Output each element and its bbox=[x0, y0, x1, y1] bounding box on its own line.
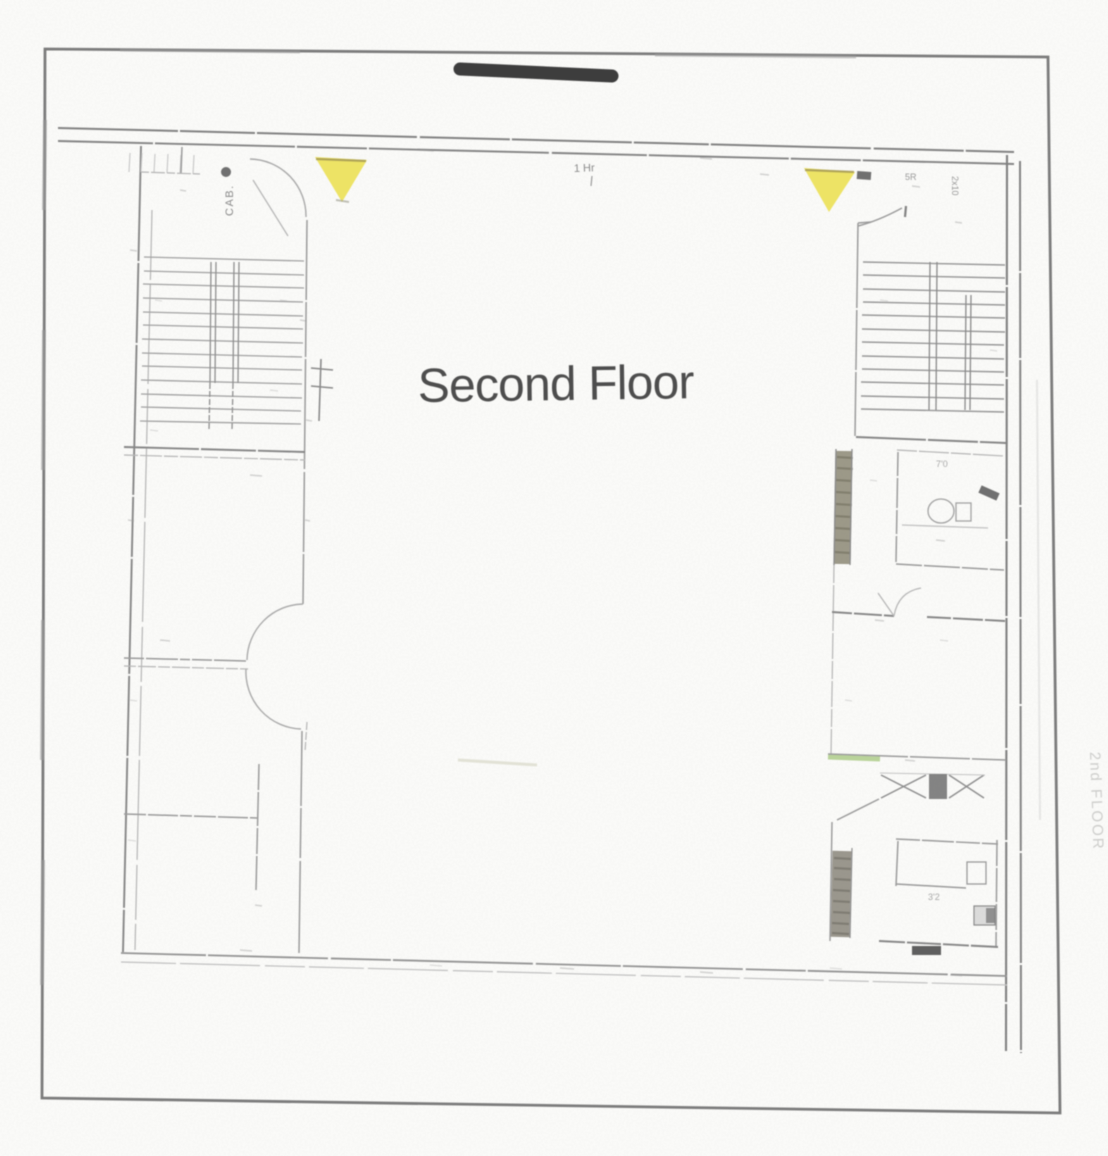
svg-text:3'2: 3'2 bbox=[928, 892, 940, 902]
svg-text:2nd FLOOR: 2nd FLOOR bbox=[1086, 752, 1106, 851]
svg-text:7'0: 7'0 bbox=[936, 459, 948, 469]
svg-text:1 Hr: 1 Hr bbox=[574, 162, 596, 175]
svg-text:CAB.: CAB. bbox=[224, 184, 236, 216]
svg-text:5R: 5R bbox=[905, 172, 917, 182]
svg-text:2x10: 2x10 bbox=[950, 176, 960, 196]
svg-text:Second Floor: Second Floor bbox=[417, 356, 694, 413]
